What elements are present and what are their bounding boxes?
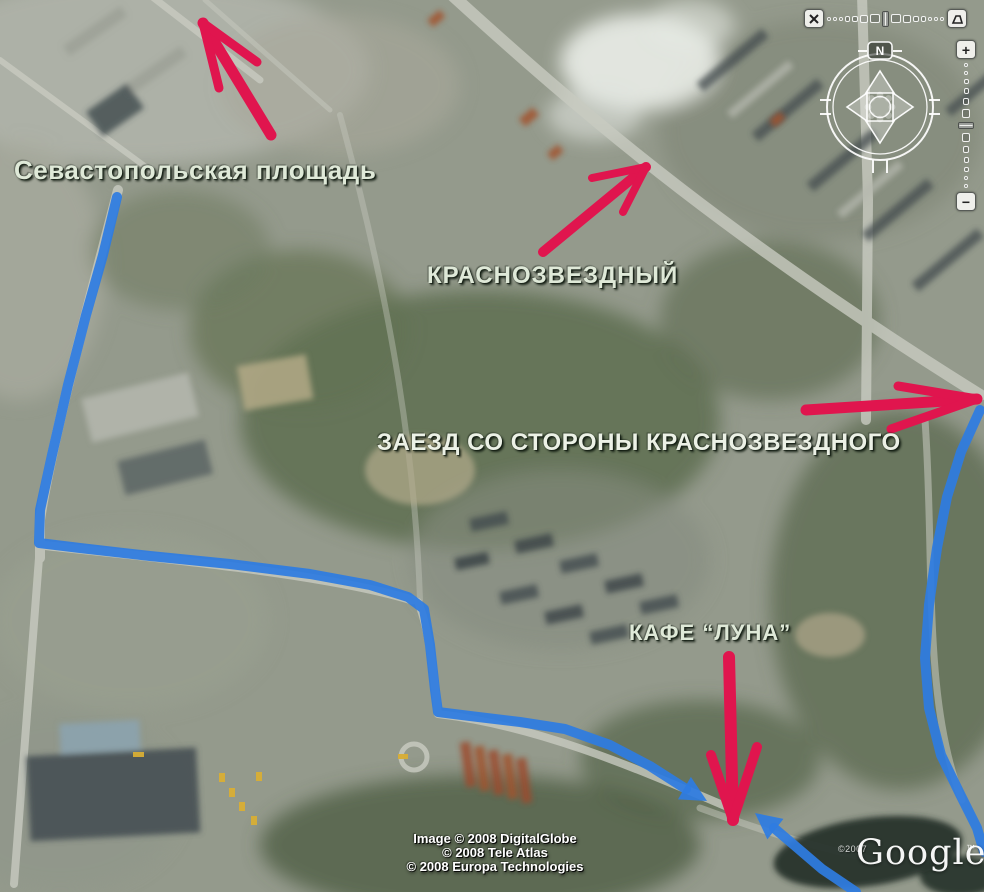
tilt-control	[804, 9, 967, 28]
pan-left-button[interactable]	[847, 93, 867, 121]
compass-control: N	[818, 38, 942, 178]
tilt-slider-tick	[891, 14, 901, 23]
tilt-slider-tick	[833, 17, 837, 21]
zoom-slider-tick	[963, 146, 969, 153]
zoom-out-button[interactable]: −	[956, 192, 976, 211]
tilt-slider-tick	[913, 16, 919, 22]
compass-center-knob[interactable]	[865, 92, 896, 123]
trademark-symbol: ™	[966, 843, 975, 853]
north-indicator[interactable]: N	[868, 42, 892, 59]
zoom-slider-tick	[964, 88, 969, 94]
pan-right-button[interactable]	[893, 93, 913, 121]
zoom-slider-handle[interactable]	[958, 122, 974, 129]
svg-text:N: N	[876, 44, 885, 58]
tilt-slider-tick	[934, 17, 938, 21]
tilt-slider-tick	[921, 16, 926, 22]
google-logo: Google	[856, 833, 984, 873]
zoom-control: + −	[956, 40, 976, 211]
tilt-view-icon	[951, 13, 964, 25]
zoom-slider-tick	[964, 71, 968, 75]
top-down-view-icon	[808, 13, 820, 25]
attribution-line-3: © 2008 Europa Technologies	[383, 860, 607, 874]
zoom-slider-tick	[963, 98, 969, 105]
copyright-attribution: Image © 2008 DigitalGlobe © 2008 Tele At…	[383, 832, 607, 874]
tilt-slider[interactable]	[827, 11, 944, 27]
zoom-slider-tick	[964, 79, 969, 84]
zoom-slider-tick	[962, 133, 970, 142]
label-krasnozvezdny: КРАСНОЗВЕЗДНЫЙ	[427, 264, 678, 288]
zoom-slider[interactable]	[958, 63, 974, 188]
tilt-slider-tick	[928, 17, 932, 21]
tilt-slider-tick	[839, 17, 843, 21]
zoom-slider-tick	[964, 63, 968, 67]
tilt-slider-tick	[845, 16, 850, 22]
tilt-slider-handle[interactable]	[882, 11, 889, 27]
tilt-reset-button[interactable]	[804, 9, 824, 28]
tilt-slider-tick	[870, 14, 880, 23]
attribution-line-1: Image © 2008 DigitalGlobe	[383, 832, 607, 846]
tilt-slider-tick	[903, 15, 911, 23]
tilt-slider-tick	[852, 16, 858, 22]
label-sevastopolskaya-ploshchad: Севастопольская площадь	[14, 157, 376, 183]
label-cafe-luna: КАФЕ “ЛУНА”	[629, 622, 791, 644]
pan-up-button[interactable]	[866, 71, 894, 93]
zoom-slider-tick	[964, 176, 968, 180]
pan-down-button[interactable]	[866, 121, 894, 143]
zoom-slider-tick	[964, 184, 968, 188]
zoom-in-button[interactable]: +	[956, 40, 976, 59]
zoom-slider-tick	[962, 109, 970, 118]
google-earth-viewport: Севастопольская площадь КРАСНОЗВЕЗДНЫЙ З…	[0, 0, 984, 892]
tilt-slider-tick	[940, 17, 944, 21]
tilt-horizon-button[interactable]	[947, 9, 967, 28]
google-watermark: ©2007 Google ™	[836, 833, 982, 885]
attribution-line-2: © 2008 Tele Atlas	[383, 846, 607, 860]
tilt-slider-tick	[860, 15, 868, 23]
label-zaezd-so-storony: ЗАЕЗД СО СТОРОНЫ КРАСНОЗВЕЗДНОГО	[377, 431, 901, 455]
zoom-slider-tick	[964, 167, 969, 172]
zoom-slider-tick	[964, 157, 969, 163]
tilt-slider-tick	[827, 17, 831, 21]
